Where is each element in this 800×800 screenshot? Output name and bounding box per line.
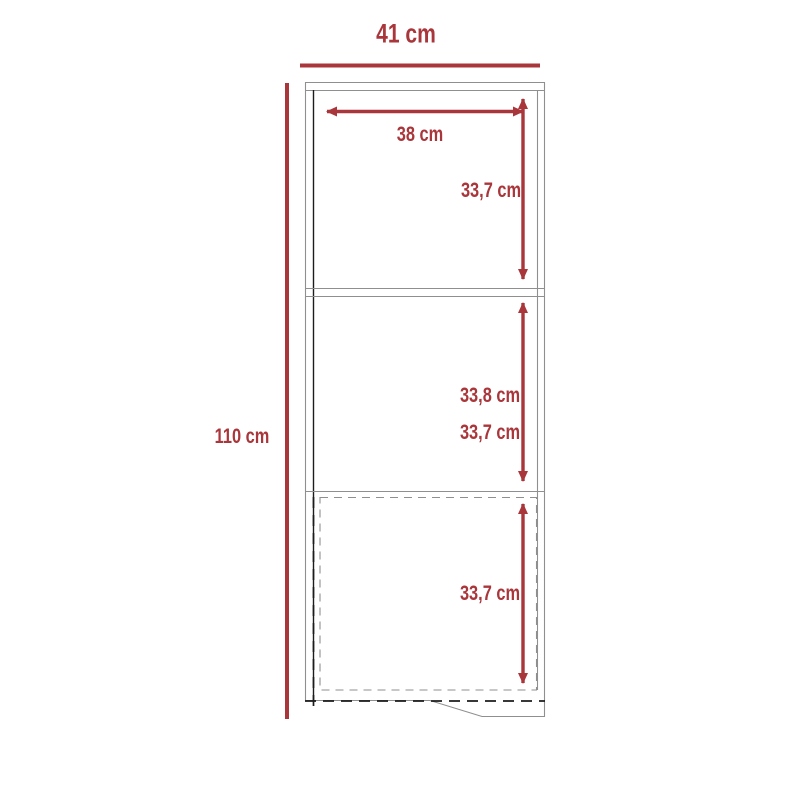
inner-width-label: 38 cm bbox=[397, 123, 443, 147]
overall-height-label: 110 cm bbox=[215, 425, 270, 449]
diagram-drawing bbox=[0, 0, 800, 800]
middle-section-height-label-primary: 33,8 cm bbox=[460, 384, 520, 408]
overall-width-label: 41 cm bbox=[376, 19, 436, 50]
middle-section-height-label-secondary: 33,7 cm bbox=[460, 421, 520, 445]
furniture-dimension-diagram: 41 cm 110 cm 38 cm 33,7 cm 33,8 cm 33,7 … bbox=[0, 0, 800, 800]
top-section-height-label: 33,7 cm bbox=[461, 179, 521, 203]
bottom-section-height-label: 33,7 cm bbox=[460, 582, 520, 606]
